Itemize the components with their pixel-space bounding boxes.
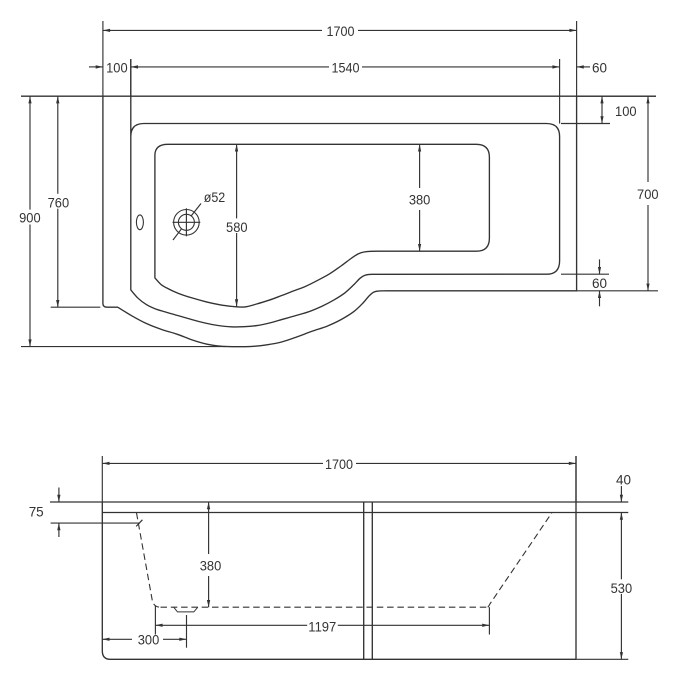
svg-text:580: 580: [226, 220, 248, 235]
svg-text:60: 60: [592, 276, 607, 291]
svg-text:1540: 1540: [332, 61, 360, 76]
svg-text:1700: 1700: [325, 457, 353, 472]
svg-text:ø52: ø52: [204, 190, 226, 205]
svg-text:60: 60: [592, 61, 607, 76]
svg-text:380: 380: [409, 193, 431, 208]
svg-text:300: 300: [138, 632, 160, 647]
svg-text:40: 40: [616, 473, 631, 488]
svg-text:760: 760: [48, 195, 70, 210]
svg-text:1197: 1197: [308, 620, 336, 635]
svg-text:380: 380: [200, 559, 222, 574]
svg-text:530: 530: [611, 581, 633, 596]
svg-text:100: 100: [615, 104, 637, 119]
svg-text:1700: 1700: [327, 24, 355, 39]
svg-text:75: 75: [29, 504, 44, 519]
svg-text:100: 100: [106, 61, 128, 76]
svg-text:900: 900: [19, 211, 41, 226]
svg-text:700: 700: [637, 187, 659, 202]
